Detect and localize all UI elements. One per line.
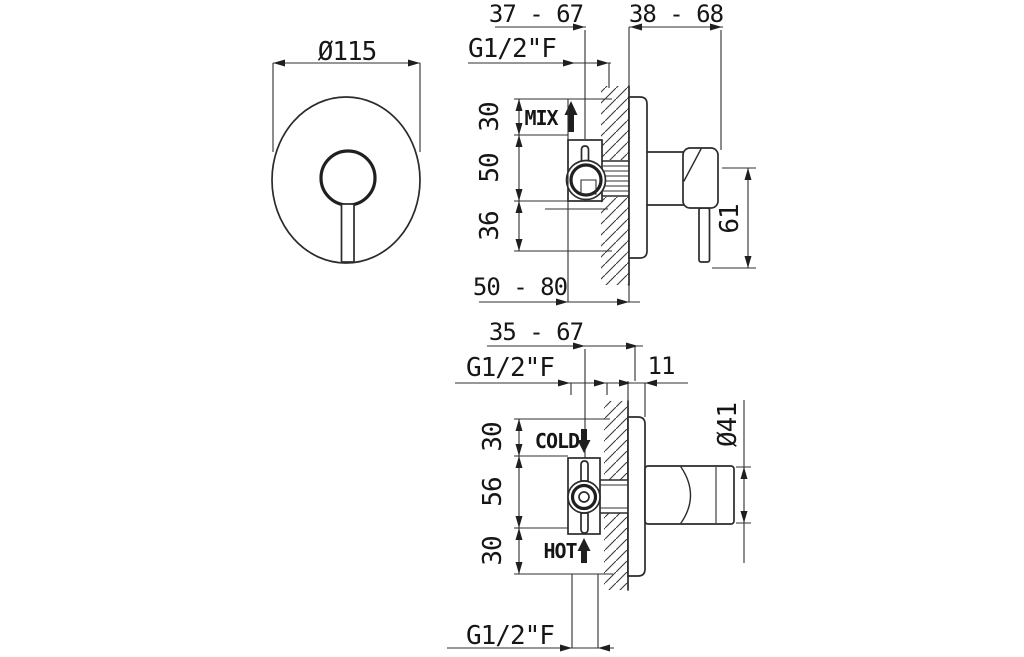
top-thread-label: G1/2"F [468, 34, 556, 64]
plate-thickness-dim: 11 [648, 352, 675, 380]
bottom-thread-label-bottom: G1/2"F [466, 621, 554, 651]
front-view: Ø115 [272, 37, 420, 263]
handle-lever-side [699, 208, 710, 262]
top-dim-36: 36 [475, 211, 505, 240]
cartridge-pin-top [581, 461, 588, 481]
lever-length-dim: 61 [715, 204, 745, 233]
cold-label: COLD [535, 429, 580, 453]
handle-base-circle [321, 151, 375, 205]
technical-drawing-page: Ø115 30 50 36 MIX [0, 0, 1024, 657]
escutcheon-plate-side-bottom [628, 417, 645, 576]
knob-diameter-dim: Ø41 [713, 403, 743, 447]
bottom-depth-range-dim: 35 - 67 [489, 318, 583, 346]
knob-body-side [645, 466, 734, 524]
hot-direction-arrow [578, 538, 591, 563]
escutcheon-plate-side-top [629, 97, 647, 258]
top-side-handle: 61 [647, 148, 756, 268]
top-dim-30: 30 [475, 102, 505, 131]
bottom-dim-56: 56 [478, 477, 508, 506]
mix-direction-arrow [565, 101, 578, 132]
mixer-valve-drawing: Ø115 30 50 36 MIX [0, 0, 1024, 657]
cartridge-pin-bottom [581, 513, 588, 533]
bottom-thread-label-top: G1/2"F [466, 353, 554, 383]
top-depth-range-dim: 37 - 67 [489, 0, 583, 28]
cartridge-center-bottom [579, 492, 589, 502]
mix-label: MIX [524, 106, 558, 130]
cold-direction-arrow [578, 429, 591, 453]
handle-body-side [683, 148, 718, 208]
bottom-side-knob: Ø41 [645, 400, 751, 563]
top-dim-50: 50 [475, 153, 505, 182]
hot-label: HOT [543, 539, 577, 563]
handle-lever-front [342, 204, 355, 262]
front-diameter-dim: Ø115 [318, 37, 377, 67]
bottom-dim-30-bottom: 30 [478, 536, 508, 565]
top-wall-range-dim: 38 - 68 [629, 0, 723, 28]
bottom-dim-30-top: 30 [478, 422, 508, 451]
top-body-depth-dim: 50 - 80 [473, 273, 567, 301]
